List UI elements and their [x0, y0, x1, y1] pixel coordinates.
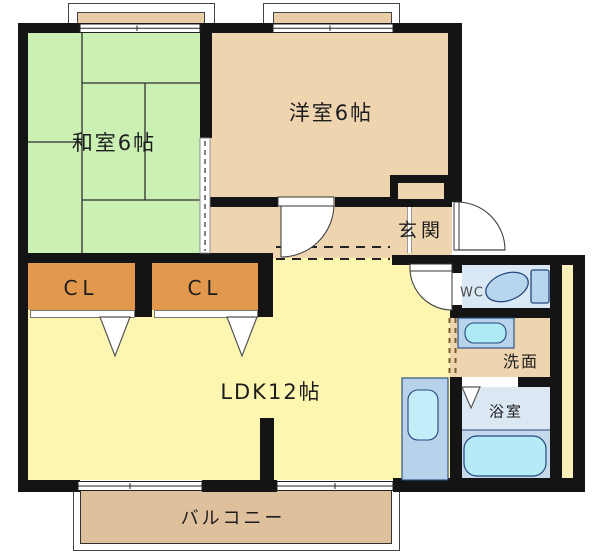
room-label-washroom: 洗面 — [503, 348, 539, 372]
shoe-cabinet-inner — [398, 183, 444, 199]
closet-left-track — [30, 310, 135, 318]
wall — [135, 263, 152, 317]
room-bathroom-lower — [462, 430, 550, 478]
wall — [392, 255, 585, 265]
wall — [550, 265, 562, 480]
wall — [450, 308, 562, 318]
wall — [258, 253, 273, 317]
room-label-closet-right: CL — [187, 276, 222, 300]
wall — [450, 377, 462, 490]
room-label-genkan: 玄関 — [398, 216, 444, 243]
pipe-space — [562, 265, 573, 480]
room-label-washitsu: 和室6帖 — [72, 127, 156, 157]
room-label-wc: WC — [460, 286, 484, 301]
closet-right-track — [154, 310, 258, 318]
wall — [205, 197, 278, 207]
room-label-closet-left: CL — [63, 276, 98, 300]
room-label-yoshitsu: 洋室6帖 — [289, 97, 373, 127]
entrance-door-arc-icon — [454, 202, 505, 250]
wall — [335, 197, 395, 207]
room-label-ldk: LDK12帖 — [220, 376, 321, 406]
wall — [573, 255, 585, 492]
wall — [18, 480, 80, 492]
wall — [518, 377, 562, 387]
wall — [200, 33, 212, 138]
floor-plan: 和室6帖 洋室6帖 玄関 CL CL LDK12帖 WC 洗面 浴室 バルコニー — [0, 0, 600, 557]
wall — [450, 265, 462, 273]
room-label-bathroom: 浴室 — [489, 401, 523, 422]
wall — [393, 478, 585, 492]
room-label-balcony: バルコニー — [181, 504, 286, 530]
wall — [260, 418, 274, 484]
wall — [18, 23, 462, 33]
wall — [18, 253, 273, 263]
